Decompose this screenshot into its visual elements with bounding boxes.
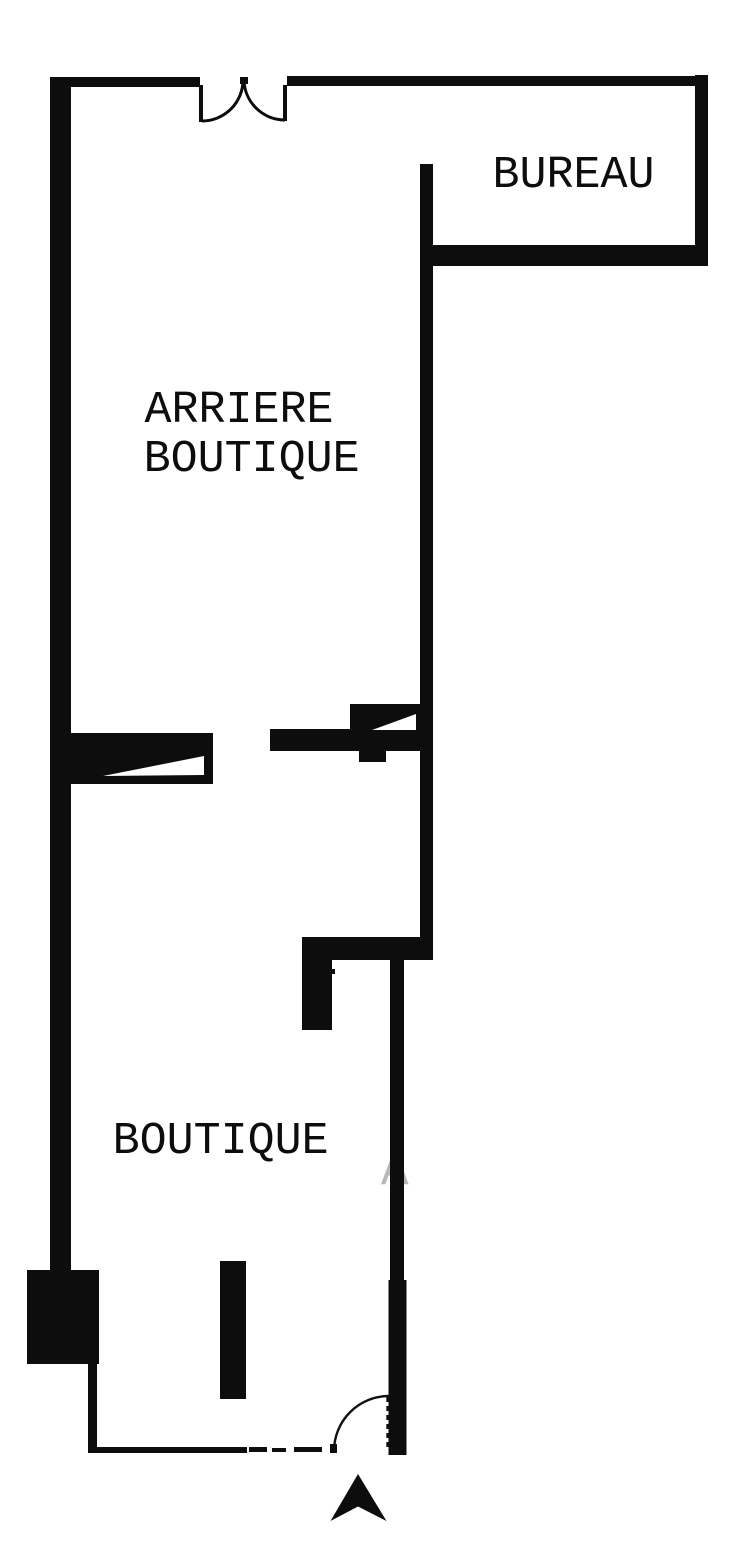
svg-text:BOUTIQUE: BOUTIQUE [113, 1116, 329, 1167]
svg-text:BOUTIQUE: BOUTIQUE [144, 434, 360, 485]
svg-text:ARRIERE: ARRIERE [145, 385, 334, 436]
svg-text:BUREAU: BUREAU [493, 150, 655, 201]
